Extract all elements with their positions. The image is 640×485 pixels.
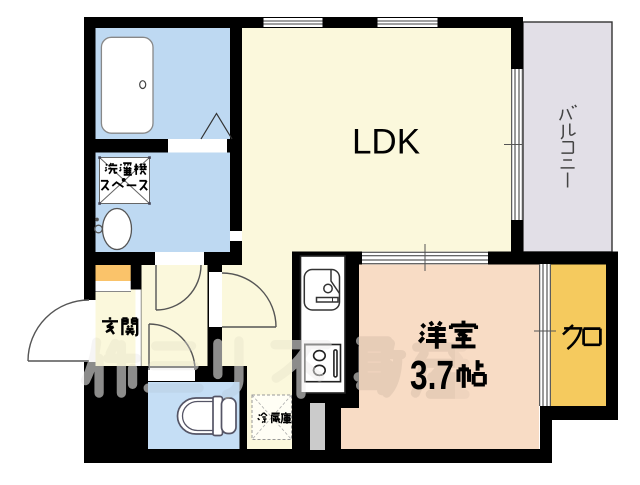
svg-text:3.7: 3.7 xyxy=(410,352,454,398)
svg-text:LDK: LDK xyxy=(352,123,420,162)
